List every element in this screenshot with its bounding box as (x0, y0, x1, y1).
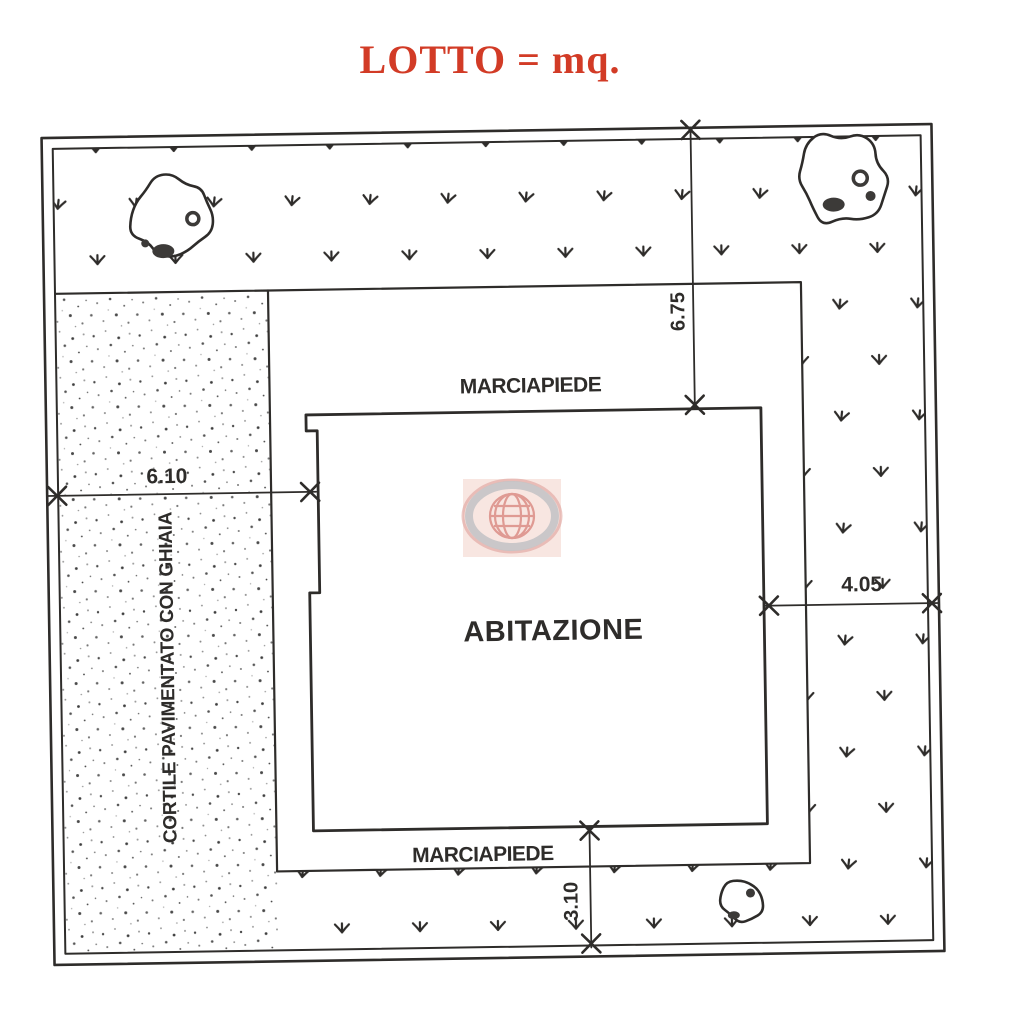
sidewalk-label-top: MARCIAPIEDE (460, 373, 602, 398)
sidewalk-label-bottom: MARCIAPIEDE (412, 842, 554, 867)
house-label: ABITAZIONE (463, 614, 644, 649)
dimension-label-6-10: 6.10 (146, 465, 187, 489)
watermark-globe-logo-icon (463, 479, 561, 557)
scanned-site-plan-page: LOTTO = mq. (0, 0, 1024, 1035)
site-plan-drawing: MARCIAPIEDE MARCIAPIEDE ABITAZIONE CORTI… (0, 0, 1024, 1035)
grass-area-right (801, 281, 933, 942)
dimension-label-3-10: 3.10 (560, 882, 583, 921)
dimension-label-4-05: 4.05 (841, 573, 883, 597)
dimension-label-6-75: 6.75 (667, 292, 690, 331)
